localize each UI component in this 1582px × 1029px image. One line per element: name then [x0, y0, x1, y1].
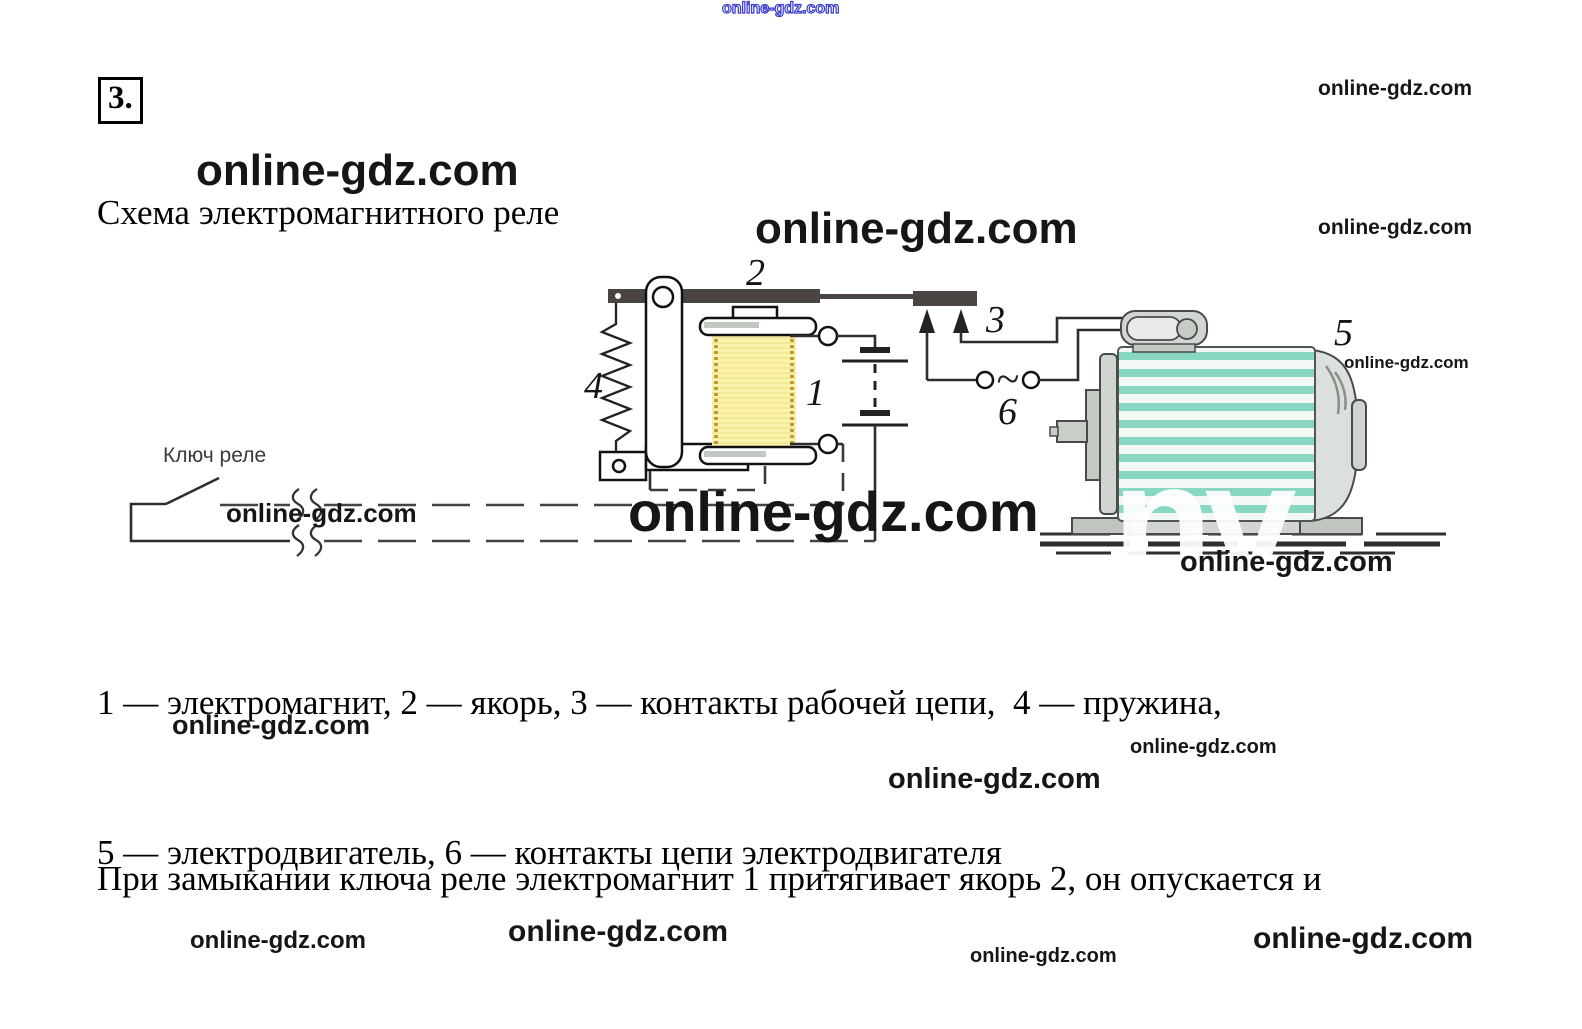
watermark: online-gdz.com: [1180, 548, 1393, 577]
watermark: online-gdz.com: [888, 765, 1101, 794]
working-contacts-icon: [919, 309, 1123, 380]
spring-icon: [600, 303, 646, 480]
label-electromagnet: 1: [806, 372, 825, 414]
label-armature: 2: [746, 252, 765, 294]
watermark: online-gdz.com: [226, 500, 417, 526]
watermark: online-gdz.com: [1253, 924, 1473, 954]
watermark: online-gdz.com: [190, 929, 366, 953]
watermark: online-gdz.com: [1318, 217, 1472, 238]
watermark: online-gdz.com: [172, 712, 370, 739]
watermark: online-gdz.com: [508, 917, 728, 947]
explanation-text: При замыкании ключа реле электромагнит 1…: [97, 741, 1361, 1029]
watermark: online-gdz.com: [1130, 737, 1277, 757]
relay-key-label: Ключ реле: [163, 444, 266, 468]
watermark: online-gdz.com: [628, 484, 1039, 540]
page-title: Схема электромагнитного реле: [97, 193, 559, 233]
task-number: 3.: [108, 80, 133, 116]
watermark: online-gdz.com: [1344, 354, 1469, 371]
watermark: online-gdz.com: [970, 946, 1117, 966]
paragraph-line: замыкает контакты рабочей цепи 3. В цепи…: [97, 1016, 1361, 1029]
label-motor: 5: [1334, 312, 1353, 354]
watermark: online-gdz.com: [755, 207, 1078, 251]
label-spring: 4: [584, 365, 603, 407]
document-page: ~: [0, 0, 1582, 1029]
watermark: online-gdz.com: [1318, 78, 1472, 99]
label-motor-contacts: 6: [998, 391, 1017, 433]
paragraph-line: При замыкании ключа реле электромагнит 1…: [97, 851, 1361, 906]
watermark: online-gdz.com: [196, 149, 519, 193]
electromagnet-coil: [700, 307, 816, 464]
label-working-contacts: 3: [985, 299, 1005, 341]
watermark-top-outline: online-gdz.com: [722, 1, 839, 17]
task-number-box: 3.: [98, 77, 143, 124]
